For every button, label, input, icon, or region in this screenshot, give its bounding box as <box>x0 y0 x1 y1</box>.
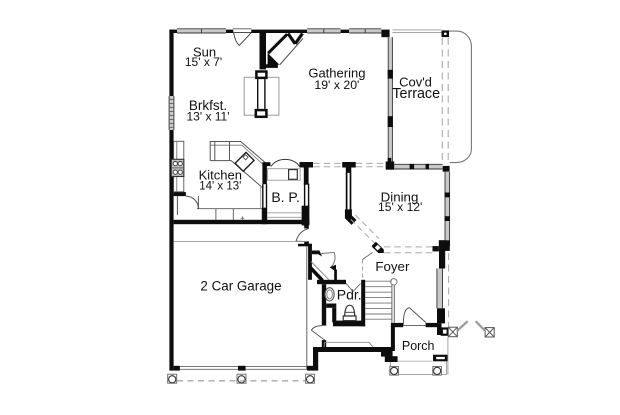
svg-text:2 Car Garage: 2 Car Garage <box>200 279 281 294</box>
svg-text:14' x 13': 14' x 13' <box>199 181 241 193</box>
svg-text:B. P.: B. P. <box>271 189 300 205</box>
svg-text:Terrace: Terrace <box>392 86 440 102</box>
svg-text:Foyer: Foyer <box>375 259 410 274</box>
svg-text:13' x 11': 13' x 11' <box>186 109 229 123</box>
svg-text:15' x 12': 15' x 12' <box>378 200 422 214</box>
svg-text:Porch: Porch <box>402 339 435 353</box>
svg-text:19' x 20': 19' x 20' <box>314 78 359 92</box>
svg-text:15' x 7': 15' x 7' <box>185 55 222 69</box>
svg-text:Pdr.: Pdr. <box>337 287 362 303</box>
